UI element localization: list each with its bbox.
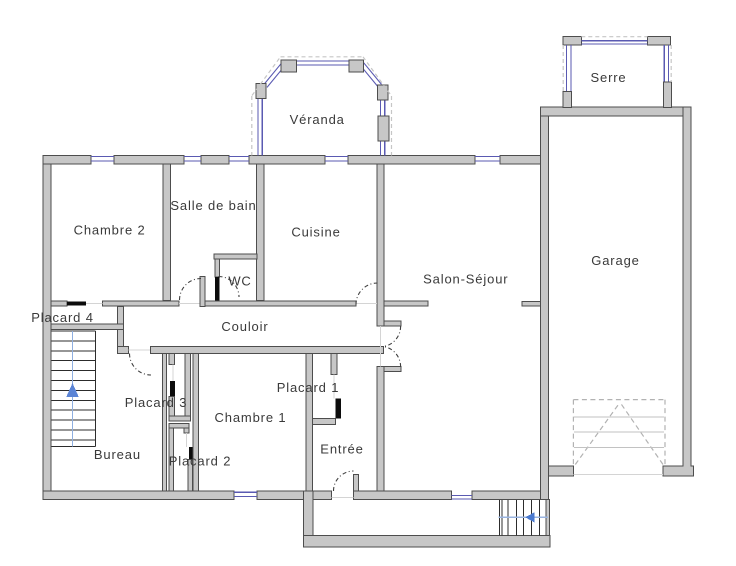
svg-text:Placard 1: Placard 1 [277,380,340,395]
svg-text:Couloir: Couloir [221,319,268,334]
svg-text:Chambre 2: Chambre 2 [74,222,146,237]
svg-text:Bureau: Bureau [94,447,141,462]
svg-text:Placard 3: Placard 3 [125,395,188,410]
svg-text:Salon-Séjour: Salon-Séjour [423,272,508,287]
svg-text:Placard 4: Placard 4 [31,310,94,325]
svg-text:Serre: Serre [590,70,626,85]
svg-text:Entrée: Entrée [320,442,363,457]
svg-text:Cuisine: Cuisine [291,225,340,240]
svg-text:Garage: Garage [591,253,639,268]
svg-text:Salle de bain: Salle de bain [170,198,256,213]
svg-text:Placard 2: Placard 2 [169,454,232,469]
svg-text:Véranda: Véranda [290,112,345,127]
svg-text:WC: WC [228,274,251,289]
svg-text:Chambre 1: Chambre 1 [215,410,287,425]
